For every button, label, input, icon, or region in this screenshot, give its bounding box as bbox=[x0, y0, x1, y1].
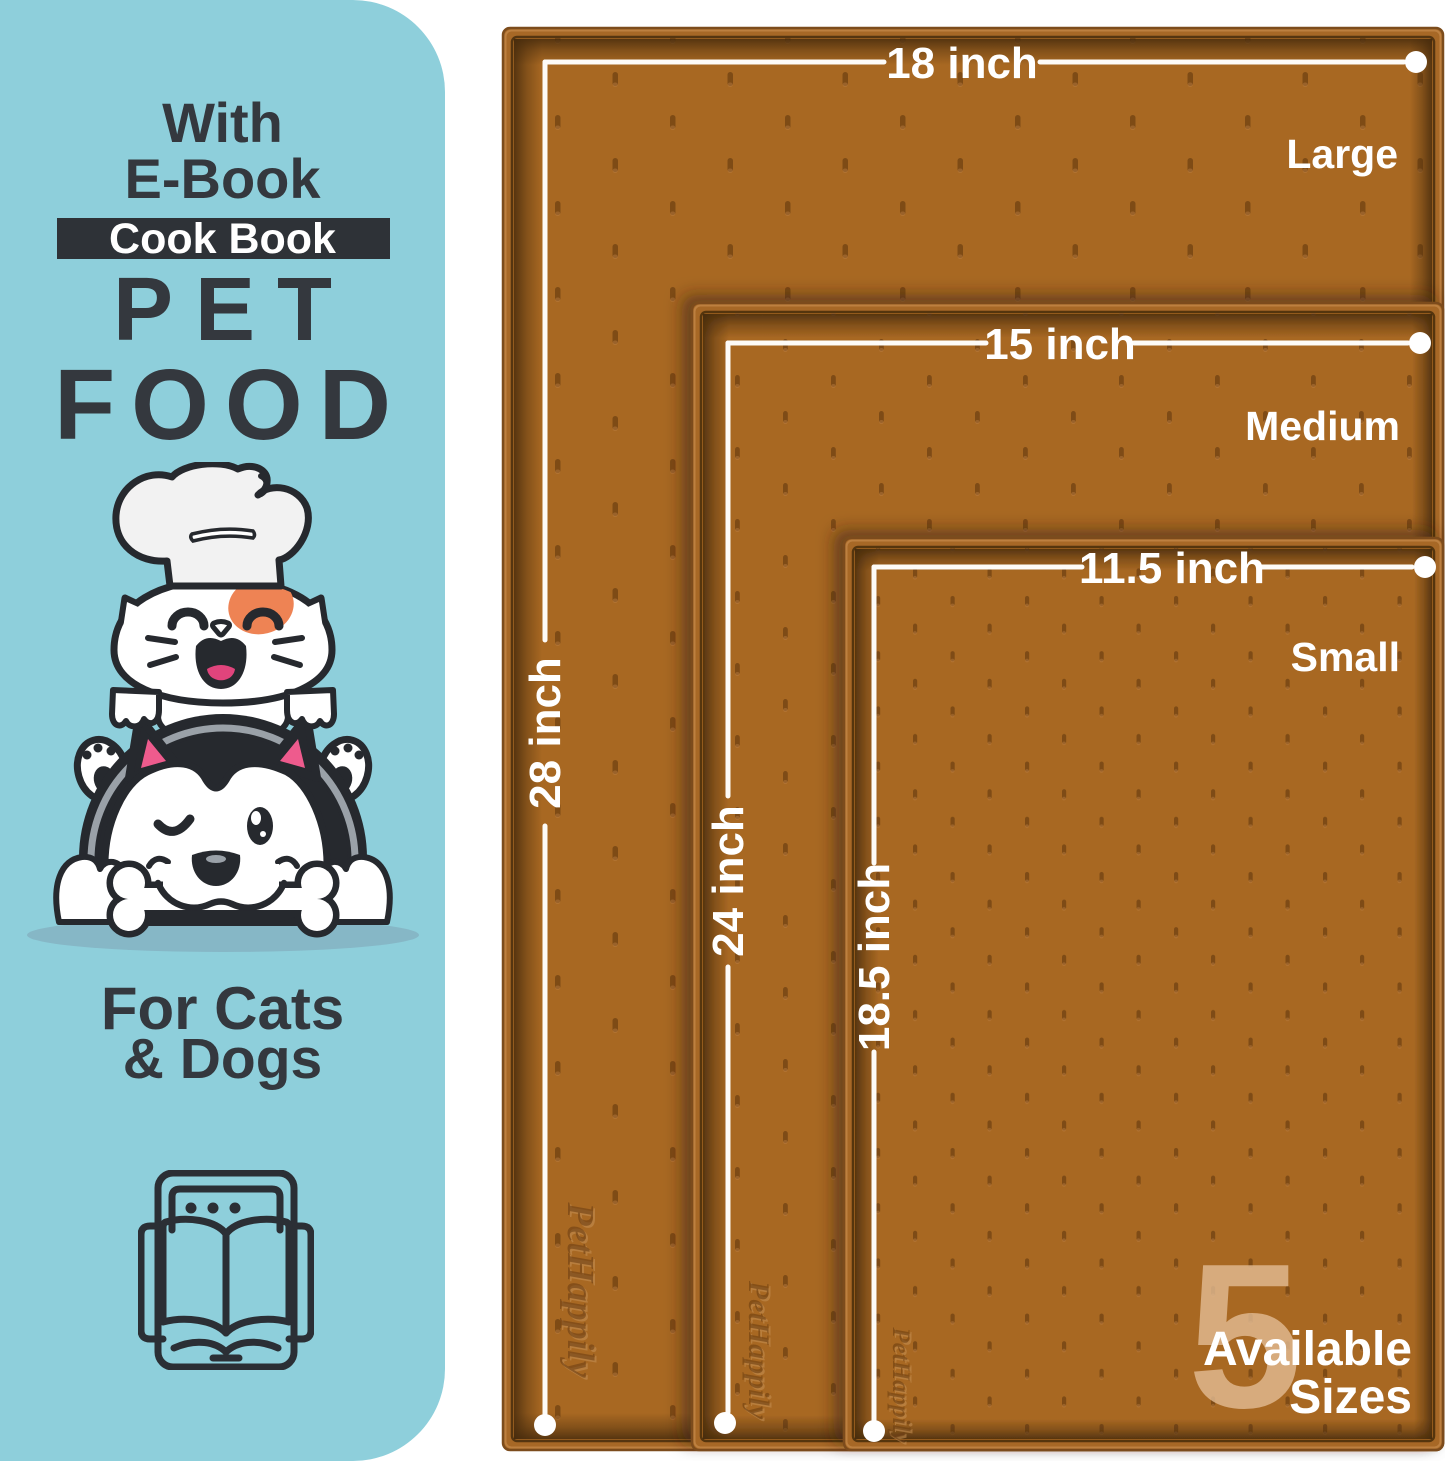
svg-text:18.5 inch: 18.5 inch bbox=[850, 863, 899, 1051]
svg-text:24 inch: 24 inch bbox=[704, 805, 753, 957]
svg-text:Sizes: Sizes bbox=[1289, 1371, 1412, 1424]
svg-text:PetHappily: PetHappily bbox=[559, 1201, 601, 1377]
svg-text:Available: Available bbox=[1203, 1323, 1412, 1376]
svg-text:Large: Large bbox=[1286, 131, 1398, 177]
svg-text:PetHappily: PetHappily bbox=[742, 1280, 775, 1420]
svg-text:11.5 inch: 11.5 inch bbox=[1079, 544, 1265, 593]
svg-text:PetHappily: PetHappily bbox=[887, 1326, 914, 1443]
svg-text:28 inch: 28 inch bbox=[521, 657, 570, 809]
svg-text:Small: Small bbox=[1291, 634, 1400, 680]
svg-text:15 inch: 15 inch bbox=[984, 320, 1136, 369]
svg-text:Medium: Medium bbox=[1245, 403, 1400, 449]
svg-text:18 inch: 18 inch bbox=[886, 39, 1038, 88]
